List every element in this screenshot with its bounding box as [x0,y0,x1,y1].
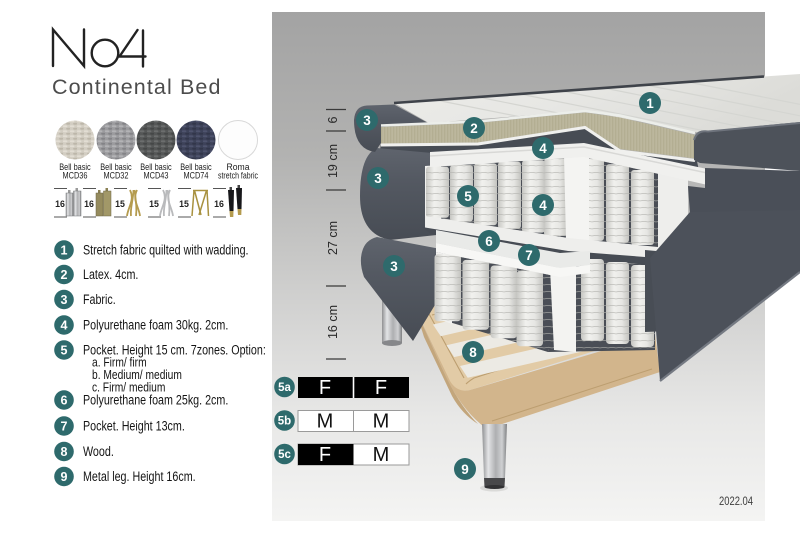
svg-text:1: 1 [646,96,654,111]
svg-text:M: M [373,444,390,466]
svg-text:Pocket. Height 13cm.: Pocket. Height 13cm. [83,419,185,434]
svg-text:15: 15 [149,199,159,209]
svg-text:M: M [317,411,334,433]
svg-text:1: 1 [61,244,68,258]
svg-text:6: 6 [326,116,340,123]
svg-text:4: 4 [539,141,547,156]
svg-text:27 cm: 27 cm [326,221,340,255]
svg-text:5c: 5c [278,449,291,461]
svg-text:MCD43: MCD43 [144,171,169,181]
svg-text:16 cm: 16 cm [326,305,340,339]
svg-text:MCD74: MCD74 [184,171,209,181]
svg-text:Continental Bed: Continental Bed [52,75,222,99]
svg-text:8: 8 [469,345,477,360]
svg-text:4: 4 [539,198,547,213]
svg-text:9: 9 [461,462,469,477]
svg-text:5b: 5b [278,416,291,428]
svg-text:Stretch fabric quilted with wa: Stretch fabric quilted with wadding. [83,243,249,258]
svg-text:9: 9 [61,470,68,484]
svg-text:15: 15 [179,199,189,209]
svg-text:16: 16 [55,199,65,209]
svg-text:F: F [319,444,331,466]
svg-text:Wood.: Wood. [83,444,114,459]
svg-text:3: 3 [61,293,68,307]
svg-text:6: 6 [485,234,493,249]
svg-text:Latex. 4cm.: Latex. 4cm. [83,267,138,282]
svg-text:3: 3 [374,171,382,186]
svg-text:2: 2 [470,121,478,136]
svg-text:6: 6 [61,394,68,408]
svg-text:F: F [319,377,331,399]
svg-text:Metal leg. Height 16cm.: Metal leg. Height 16cm. [83,469,196,484]
svg-text:15: 15 [115,199,125,209]
svg-text:19 cm: 19 cm [326,144,340,178]
svg-text:16: 16 [214,199,224,209]
svg-text:5: 5 [464,189,472,204]
svg-text:3: 3 [390,259,398,274]
svg-text:3: 3 [363,113,371,128]
svg-text:2: 2 [61,268,68,282]
svg-text:5: 5 [61,344,68,358]
svg-text:16: 16 [84,199,94,209]
svg-text:stretch fabric: stretch fabric [218,171,258,181]
svg-text:M: M [373,411,390,433]
svg-text:7: 7 [525,248,533,263]
svg-text:Fabric.: Fabric. [83,292,116,307]
svg-text:MCD32: MCD32 [104,171,129,181]
svg-text:5a: 5a [278,382,291,394]
svg-text:4: 4 [61,319,68,333]
svg-text:2022.04: 2022.04 [719,496,753,508]
svg-text:Polyurethane foam 30kg. 2cm.: Polyurethane foam 30kg. 2cm. [83,318,228,333]
svg-text:F: F [375,377,387,399]
svg-text:MCD36: MCD36 [63,171,88,181]
svg-text:Polyurethane foam 25kg. 2cm.: Polyurethane foam 25kg. 2cm. [83,393,228,408]
svg-text:7: 7 [61,420,68,434]
svg-text:8: 8 [61,445,68,459]
